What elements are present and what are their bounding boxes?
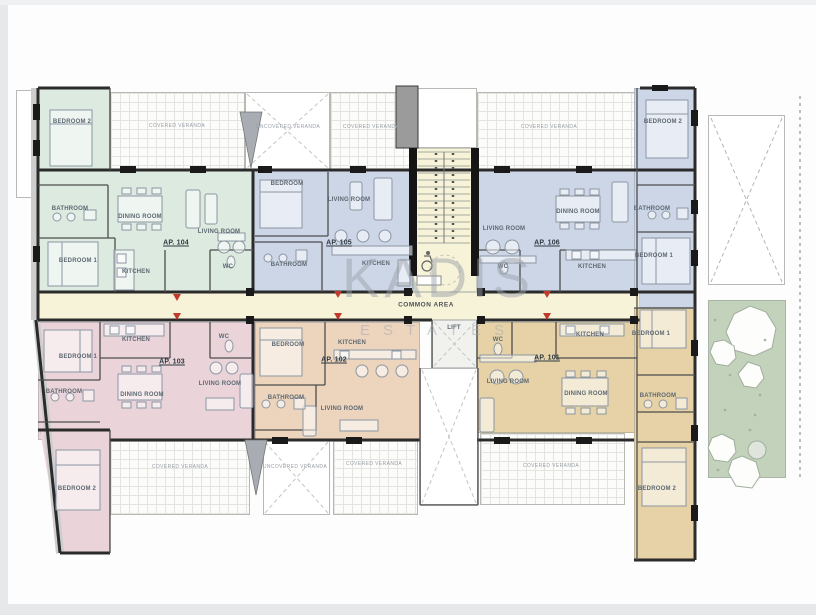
garden-region: [708, 300, 786, 478]
veranda-bottom-uncovered: [263, 440, 330, 515]
apartment-103-region: [38, 322, 255, 440]
common-area-corridor: [38, 292, 640, 320]
watermark-sub: ESTATES: [360, 322, 517, 339]
veranda-top-ap104: [110, 92, 245, 170]
floor-plan-sheet: BEDROOM 2COVERED VERANDAUNCOVERED VERAND…: [0, 0, 816, 615]
veranda-top-ap105: [330, 92, 413, 170]
veranda-top-ap106: [477, 92, 640, 170]
apartment-103-bedroom2-region: [40, 430, 110, 553]
planter-left: [16, 90, 38, 198]
stair-upper-shaft: [413, 88, 477, 148]
plot-area-dashed-box: [708, 115, 785, 285]
veranda-bottom-ap101: [480, 433, 625, 505]
apartment-104-bedroom2-region: [38, 88, 110, 178]
apartment-101-wing-region: [634, 308, 695, 560]
veranda-bottom-ap102: [333, 440, 418, 515]
veranda-bottom-ap103: [110, 440, 250, 515]
watermark-brand: KADIS: [342, 250, 535, 306]
veranda-top-uncovered: [245, 92, 330, 170]
apartment-106-wing-region: [634, 88, 695, 308]
lightwell-region: [420, 368, 478, 505]
page-edge-left: [0, 0, 8, 615]
apartment-102-region: [255, 322, 420, 440]
page-edge-top: [0, 0, 816, 5]
page-edge-bottom: [0, 604, 816, 615]
apartment-104-region: [38, 170, 253, 292]
